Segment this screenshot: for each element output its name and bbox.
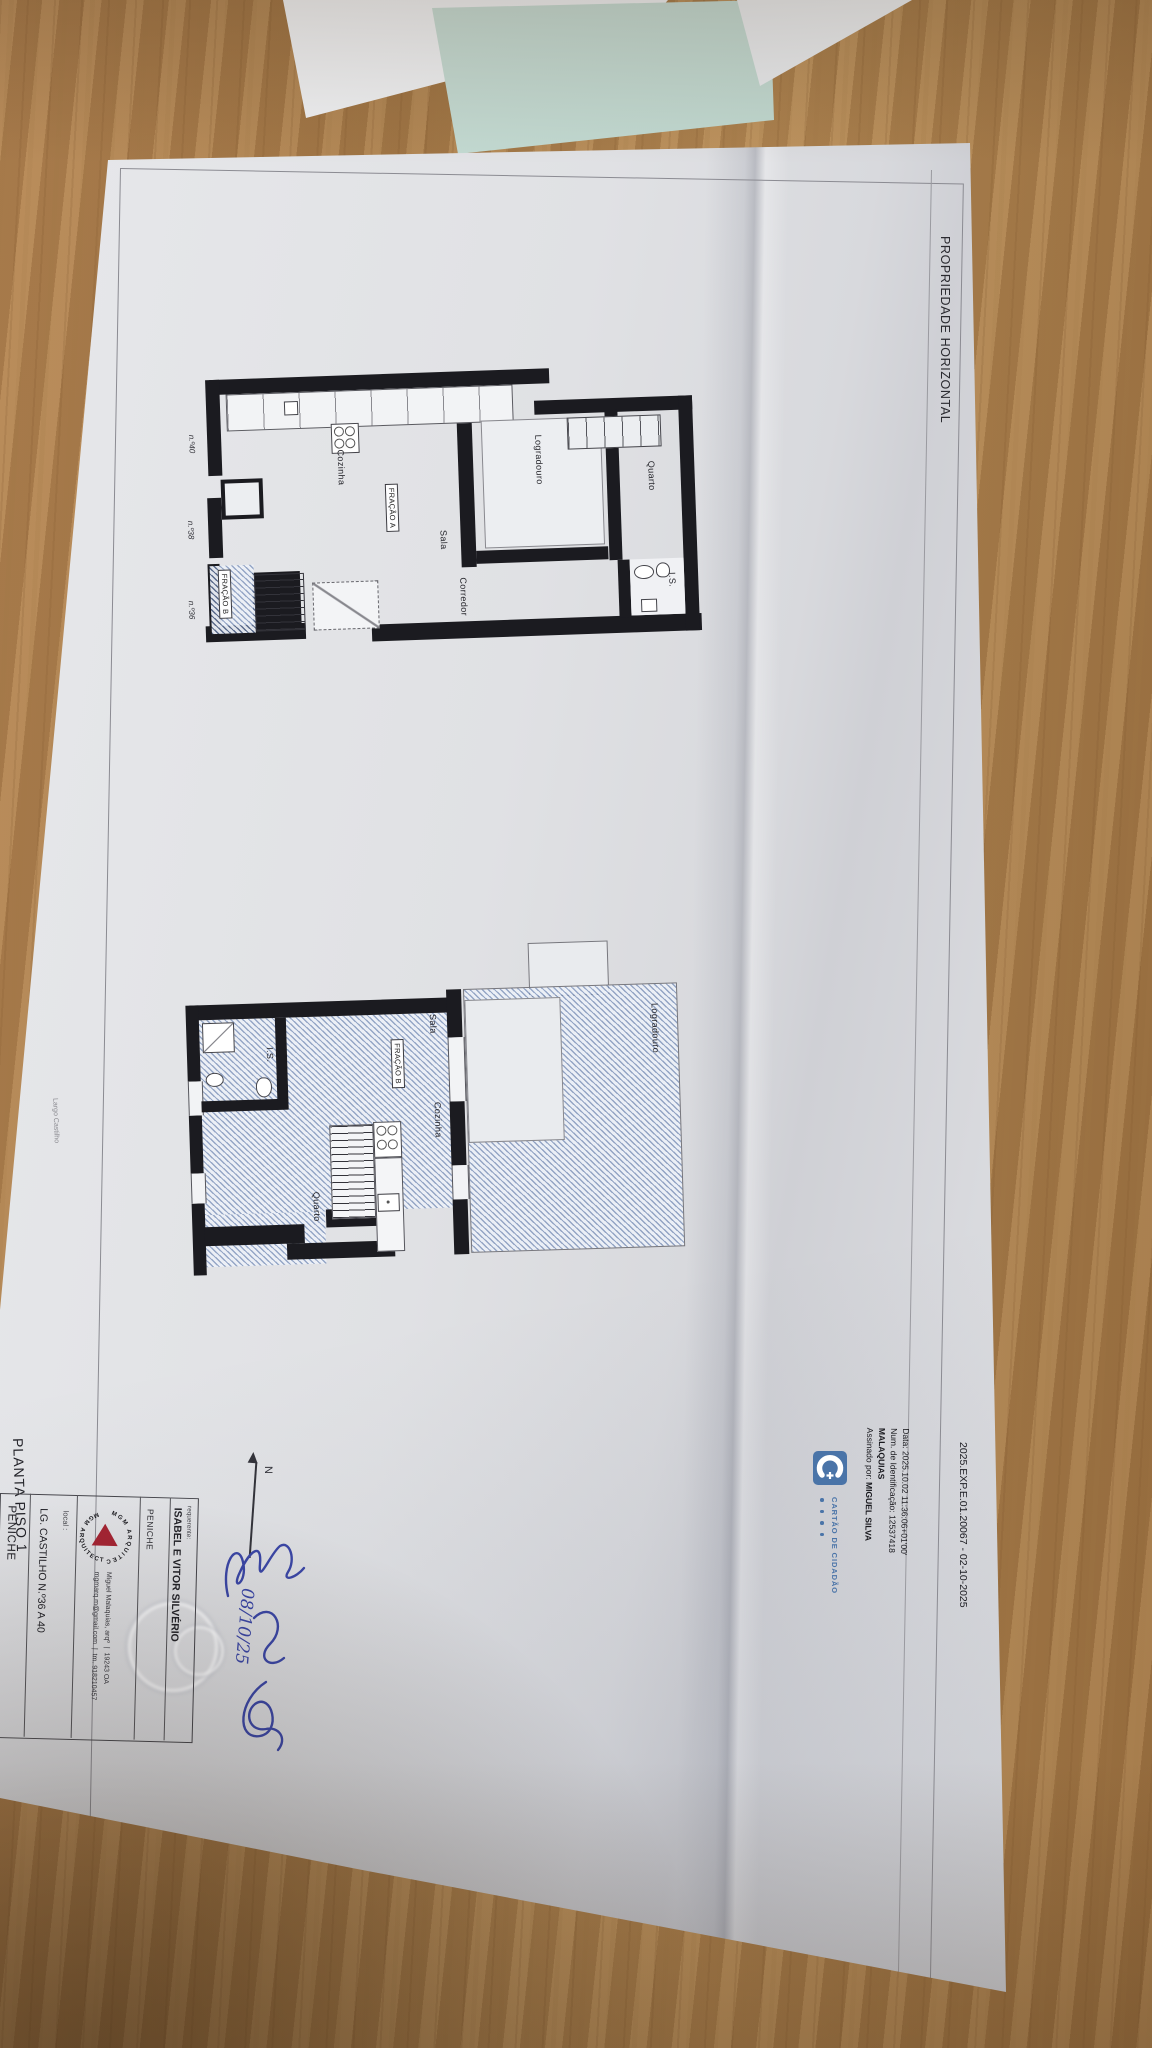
wall bbox=[189, 1115, 204, 1173]
local-city: PENICHE bbox=[4, 1505, 17, 1561]
courtyard-inset bbox=[464, 997, 564, 1143]
digital-signature-block: Assinado por: MIGUEL SILVA MALAQUIAS Num… bbox=[860, 1428, 912, 1679]
room-label-sala: Sala bbox=[428, 1014, 439, 1034]
separator: | bbox=[91, 1648, 98, 1650]
wall bbox=[446, 989, 463, 1037]
architect-reg: 19243 OA bbox=[102, 1652, 110, 1684]
fracao-b-label: FRAÇÃO B bbox=[391, 1039, 406, 1088]
mgm-logo-triangle bbox=[92, 1523, 119, 1546]
fracao-a-label: FRAÇÃO A bbox=[385, 484, 400, 533]
wall bbox=[372, 613, 702, 642]
requerente-city: PENICHE bbox=[145, 1509, 156, 1551]
room-label-logradouro: Logradouro bbox=[650, 1003, 662, 1053]
citizen-card-icon bbox=[812, 1450, 848, 1486]
room-label-quarto: Quarto bbox=[311, 1192, 322, 1222]
sink-square bbox=[377, 1193, 400, 1212]
room-label-cozinha: Cozinha bbox=[336, 449, 347, 485]
room-label-is: I.S. bbox=[265, 1047, 275, 1062]
stair-fracao-b bbox=[210, 565, 256, 634]
wall bbox=[453, 1199, 470, 1254]
architect-phone: tm. 918210457 bbox=[90, 1653, 98, 1700]
window-mark bbox=[452, 1165, 470, 1200]
signed-by-prefix: Assinado por: bbox=[864, 1428, 875, 1483]
photo-scene: PROPRIEDADE HORIZONTAL 2025.EXP.E.01.200… bbox=[0, 0, 1152, 2048]
house-number-36: n.º36 bbox=[187, 601, 197, 620]
street-label-piso0: Largo Castilho bbox=[57, 476, 66, 521]
drawing-sheet: PROPRIEDADE HORIZONTAL 2025.EXP.E.01.200… bbox=[0, 0, 1152, 2048]
handwritten-signature bbox=[208, 1532, 328, 1762]
north-letter: N bbox=[262, 1466, 274, 1474]
wall bbox=[476, 546, 608, 564]
floor-plan-piso1: I.S. Sala FRAÇÃO B Cozinha Quarto Lograd… bbox=[178, 946, 710, 1340]
doc-reference: 2025.EXP.E.01.20067 - 02-10-2025 bbox=[957, 1442, 969, 1608]
room-label-corredor: Corredor bbox=[458, 577, 469, 616]
signer-name-1: MIGUEL SILVA bbox=[863, 1482, 874, 1541]
architect-name: Miguel Malaquias, arqº bbox=[103, 1572, 112, 1643]
fracao-b-label: FRAÇÃO B bbox=[218, 569, 233, 618]
skylight-row bbox=[567, 414, 662, 449]
page-title: PROPRIEDADE HORIZONTAL bbox=[938, 236, 952, 423]
room-label-cozinha: Cozinha bbox=[433, 1102, 444, 1138]
stair-piso1 bbox=[329, 1124, 376, 1219]
shower-icon bbox=[202, 1022, 235, 1053]
plan-title-piso0: PLANTA PISO 0 bbox=[12, 588, 32, 703]
bidet-icon bbox=[641, 599, 657, 613]
floor-plan-piso0: FRAÇÃO B Cozinha FRAÇÃO A Sala Logradour… bbox=[183, 361, 705, 681]
separator: | bbox=[103, 1647, 110, 1649]
mgm-logo: MGM ARQUITECTURA MGM ARQUITECTURA bbox=[73, 1505, 137, 1569]
requerente-label: requerente: bbox=[185, 1506, 193, 1539]
local-label: local : bbox=[61, 1511, 71, 1531]
fracao-b-floor bbox=[199, 1013, 453, 1216]
window-mark bbox=[191, 1173, 207, 1203]
closet bbox=[221, 478, 264, 519]
stair-dashed bbox=[312, 580, 380, 630]
window-mark bbox=[448, 1037, 467, 1102]
room-label-quarto: Quarto bbox=[646, 461, 657, 491]
stair-treads bbox=[254, 573, 306, 632]
room-label-logradouro: Logradouro bbox=[533, 434, 545, 484]
wall bbox=[450, 1101, 467, 1165]
wall bbox=[185, 1005, 200, 1081]
signer-name-2: MALAQUIAS bbox=[876, 1428, 887, 1480]
title-block: requerente: ISABEL E VITOR SILVÉRIO PENI… bbox=[0, 1493, 200, 1746]
citizen-card-label: CARTÃO DE CIDADÃO bbox=[830, 1497, 839, 1594]
stove-icon bbox=[373, 1121, 402, 1158]
house-number-38: n.º38 bbox=[186, 521, 196, 540]
wall bbox=[456, 399, 477, 567]
house-number-40: n.º40 bbox=[187, 435, 197, 454]
architect-email: mgmarq.m@gmail.com bbox=[91, 1571, 100, 1644]
room-label-is: I.S. bbox=[667, 572, 678, 587]
citizen-card-dots bbox=[820, 1498, 824, 1536]
north-arrowhead bbox=[248, 1452, 259, 1464]
room-label-sala: Sala bbox=[438, 530, 449, 550]
stove-dot bbox=[284, 401, 298, 415]
architect-contact: Miguel Malaquias, arqº | 19243 OA mgmarq… bbox=[87, 1571, 114, 1702]
